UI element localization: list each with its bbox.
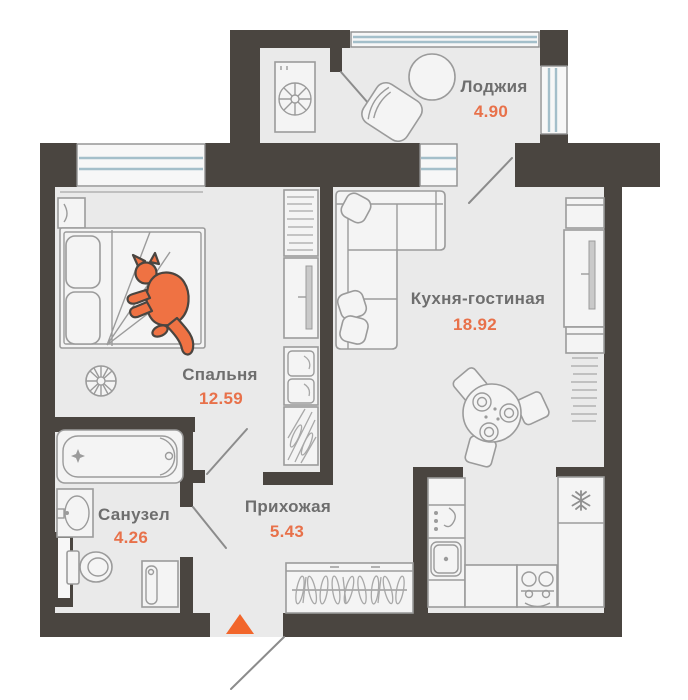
loggia-round-table xyxy=(409,54,455,100)
floor-plan-page: Лоджия 4.90 Кухня-гостиная 18.92 Спальня… xyxy=(0,0,688,700)
bathroom-area: 4.26 xyxy=(114,528,148,547)
bedroom-label: Спальня xyxy=(182,365,258,384)
loggia-area: 4.90 xyxy=(474,102,508,121)
hallway-area: 5.43 xyxy=(270,522,304,541)
shoe-rack xyxy=(284,407,318,465)
loggia-top-window xyxy=(351,32,539,47)
kitchen-counter-column xyxy=(428,478,465,607)
toilet xyxy=(67,551,112,584)
kitchen-counter-bottom xyxy=(465,565,517,607)
loggia-label: Лоджия xyxy=(460,77,527,96)
hallway-label: Прихожая xyxy=(245,497,331,516)
shoe-cabinet xyxy=(284,347,318,405)
pillow xyxy=(66,236,100,288)
loggia-side-window xyxy=(541,66,567,134)
round-dining-table xyxy=(463,384,521,442)
bedroom-tv-console xyxy=(284,258,318,338)
fridge-freezer xyxy=(558,477,604,607)
kitchen-loggia-window xyxy=(420,144,457,186)
bedroom-window xyxy=(77,144,205,186)
hallway-wardrobe xyxy=(286,563,413,613)
bedroom-area: 12.59 xyxy=(199,389,243,408)
bathroom-cabinet xyxy=(142,561,178,607)
bedroom-bookshelf xyxy=(284,190,318,256)
nightstand xyxy=(58,198,85,228)
entrance-door xyxy=(231,637,284,689)
bathroom-label: Санузел xyxy=(98,505,170,524)
pillow xyxy=(66,292,100,344)
potted-plant xyxy=(86,366,116,396)
stove xyxy=(517,565,557,607)
wash-basin xyxy=(57,489,93,537)
kitchen-living-area: 18.92 xyxy=(453,315,497,334)
washing-machine xyxy=(275,62,315,132)
bathtub xyxy=(57,430,183,483)
kitchen-living-label: Кухня-гостиная xyxy=(411,289,545,308)
floor-plan: Лоджия 4.90 Кухня-гостиная 18.92 Спальня… xyxy=(0,0,688,700)
